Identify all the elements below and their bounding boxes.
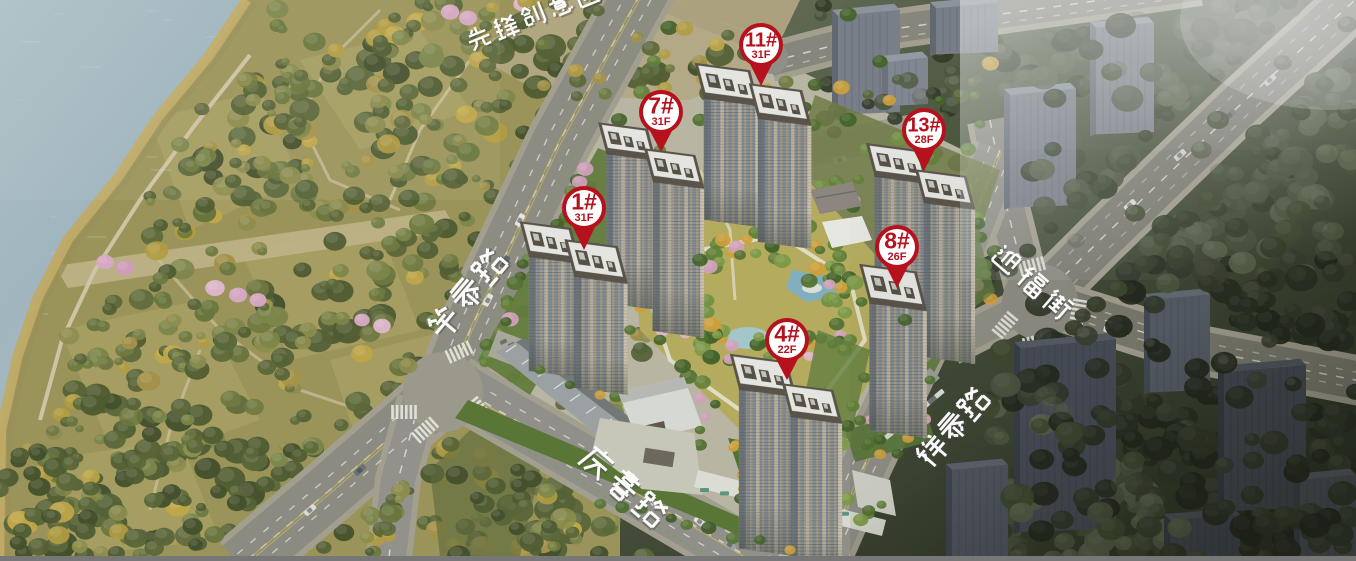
svg-text:26F: 26F	[888, 251, 907, 263]
svg-text:28F: 28F	[915, 134, 934, 146]
svg-text:31F: 31F	[575, 212, 594, 224]
svg-text:31F: 31F	[652, 116, 671, 128]
svg-text:8#: 8#	[884, 228, 910, 254]
svg-text:31F: 31F	[752, 49, 771, 61]
svg-text:7#: 7#	[648, 93, 674, 119]
svg-text:4#: 4#	[774, 321, 800, 347]
svg-text:1#: 1#	[571, 189, 597, 215]
svg-text:22F: 22F	[778, 344, 797, 356]
